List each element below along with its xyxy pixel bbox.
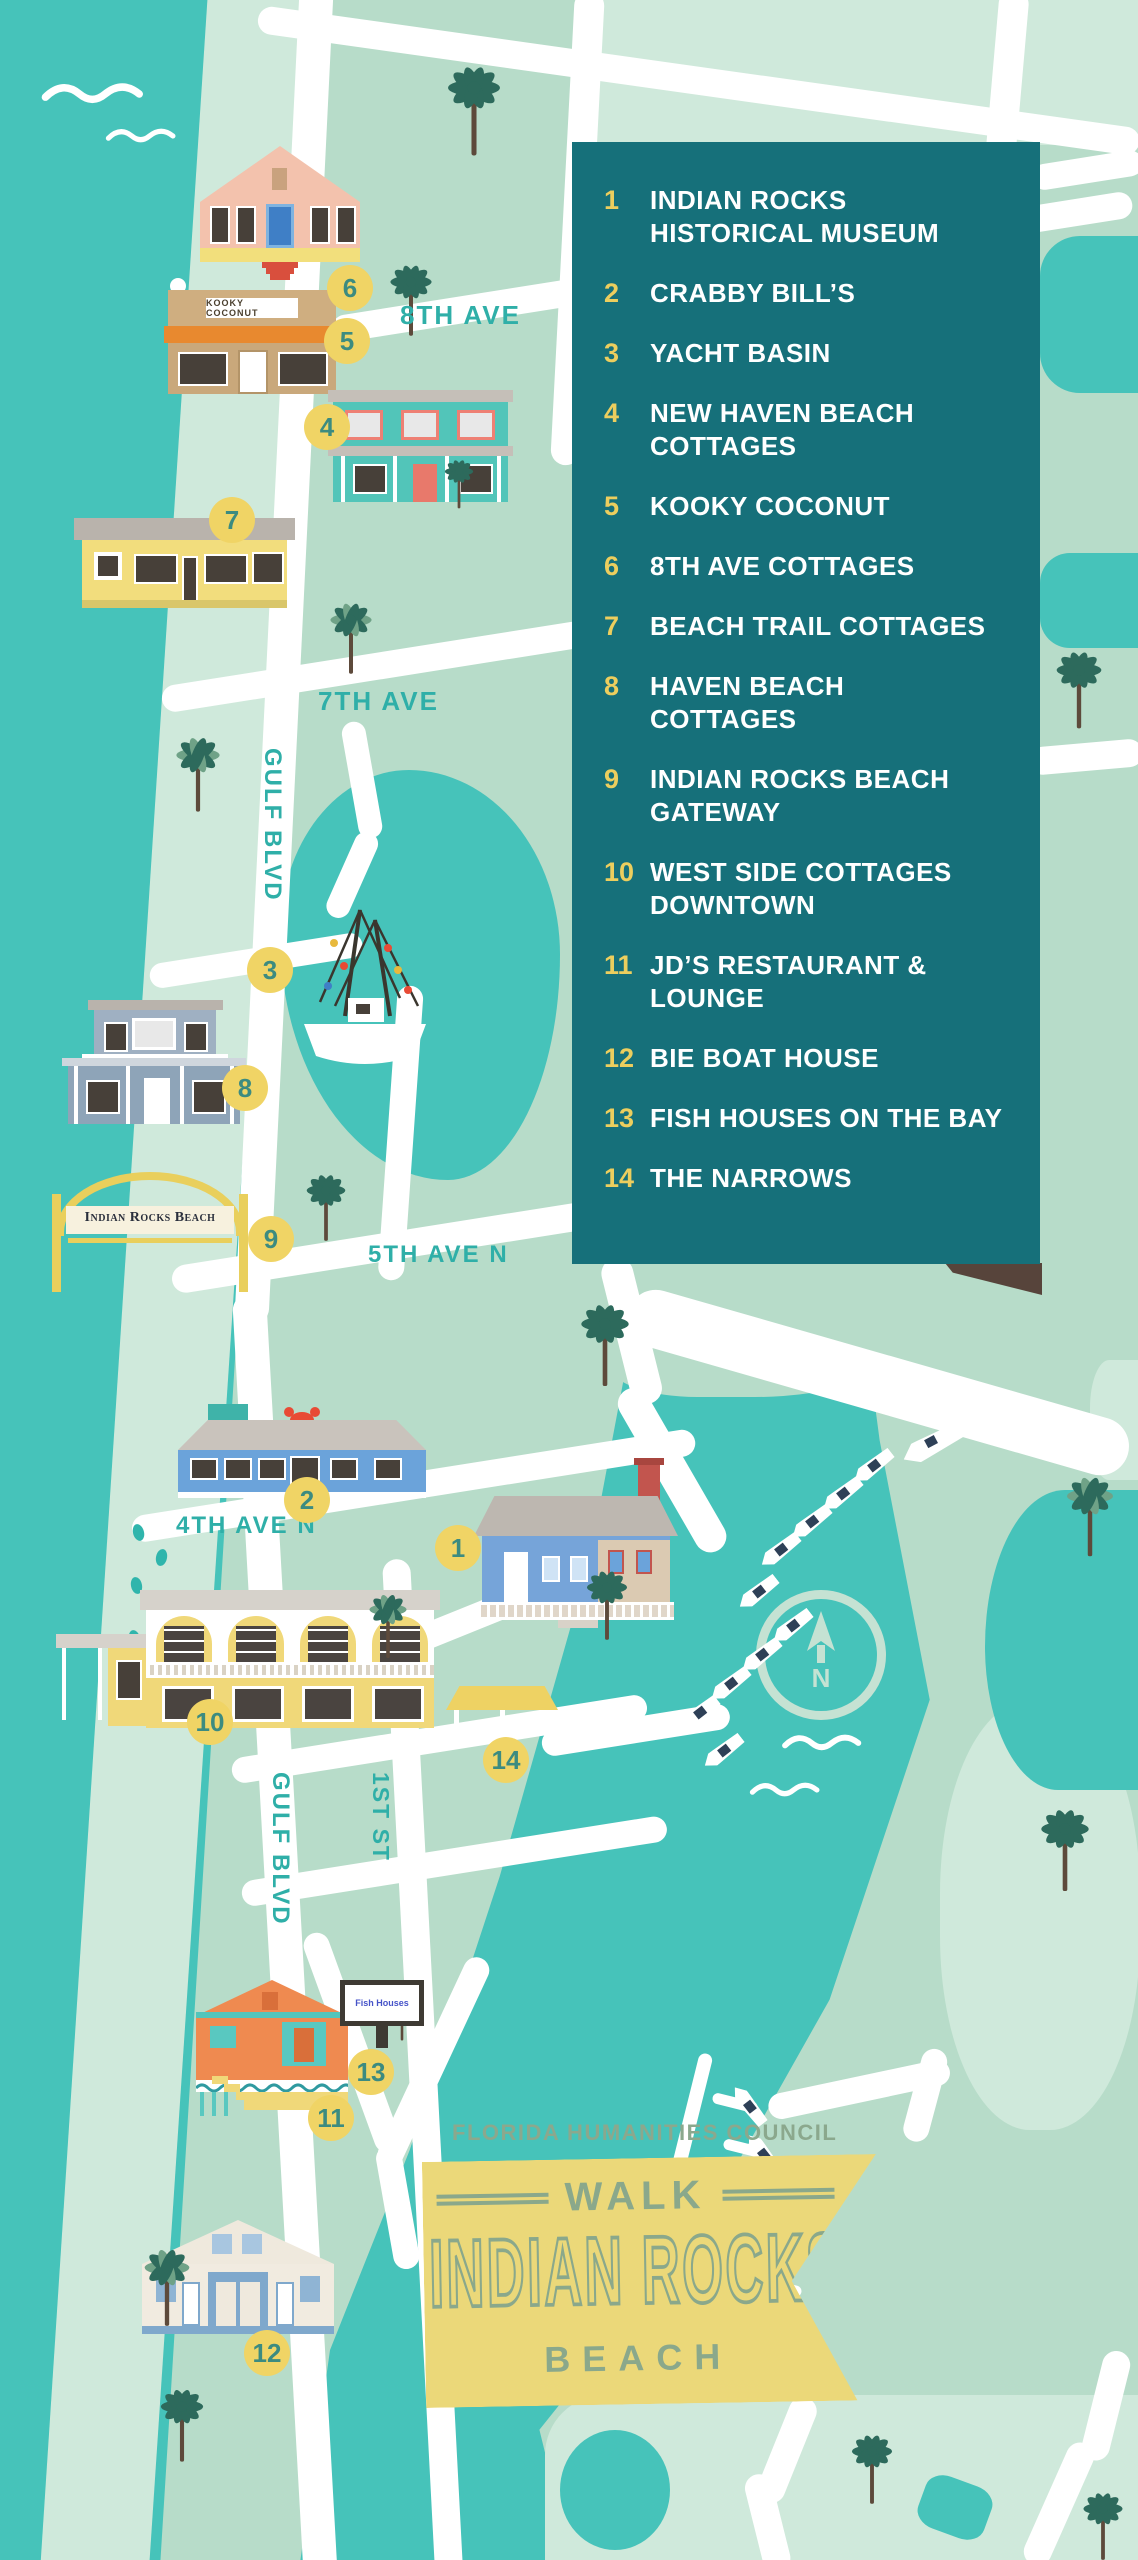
legend-number: 10 [604, 856, 650, 922]
compass-north-label: N [765, 1663, 877, 1694]
map-marker-3: 3 [247, 947, 293, 993]
palm-tree-icon [438, 52, 510, 164]
street-label-gulf-blvd-lower: GULF BLVD [266, 1772, 294, 1942]
legend-number: 7 [604, 610, 650, 643]
legend-item: 1INDIAN ROCKS HISTORICAL MUSEUM [604, 184, 1014, 250]
palm-tree-icon [150, 2382, 214, 2464]
gateway-sign-label: Indian Rocks Beach [66, 1210, 234, 1226]
entry-door [216, 2282, 236, 2326]
post [393, 456, 397, 502]
storefront [302, 1686, 354, 1722]
map-marker-9: 9 [248, 1216, 294, 1262]
palm-tree-icon [1032, 1800, 1098, 1895]
legend-item: 5KOOKY COCONUT [604, 490, 1014, 523]
post [545, 1710, 550, 1736]
legend-label: BIE BOAT HOUSE [650, 1042, 879, 1075]
legend-item: 11JD’S RESTAURANT & LOUNGE [604, 949, 1014, 1015]
sign-board: Fish Houses [340, 1980, 424, 2026]
post [52, 1194, 61, 1292]
attic-window [242, 2234, 262, 2254]
window [86, 1080, 120, 1114]
legend-label: JD’S RESTAURANT & LOUNGE [650, 949, 927, 1015]
hip-roof [178, 1420, 426, 1450]
roof-cap [88, 1000, 223, 1010]
building-8th-ave-cottages [200, 146, 360, 282]
legend-item: 9INDIAN ROCKS BEACH GATEWAY [604, 763, 1014, 829]
legend-number: 2 [604, 277, 650, 310]
building-beach-trail-cottages [82, 518, 287, 614]
street-label-8th-ave: 8TH AVE [400, 300, 521, 331]
post [341, 456, 345, 502]
base [200, 248, 360, 262]
map-marker-14: 14 [483, 1737, 529, 1783]
post [497, 456, 501, 502]
stilt [224, 2092, 228, 2116]
map-marker-11: 11 [308, 2095, 354, 2141]
window [300, 2276, 320, 2302]
porch-roof [62, 1058, 246, 1066]
banner-subtitle: BEACH [544, 2336, 733, 2381]
map-marker-10: 10 [187, 1699, 233, 1745]
legend-label: HAVEN BEACH COTTAGES [650, 670, 844, 736]
steps [270, 274, 290, 280]
legend-item: 12BIE BOAT HOUSE [604, 1042, 1014, 1075]
wave-icon [38, 78, 168, 110]
legend-item: 4NEW HAVEN BEACH COTTAGES [604, 397, 1014, 463]
building-kooky-coconut: KOOKY COCONUT [168, 290, 336, 394]
legend-item: 2CRABBY BILL’S [604, 277, 1014, 310]
illustrated-walking-map: N KOOKY COCONUT [0, 0, 1138, 2560]
roof [474, 1496, 678, 1536]
fish-houses-sign: Fish Houses [340, 1980, 430, 2050]
map-marker-6: 6 [327, 265, 373, 311]
legend-number: 9 [604, 763, 650, 829]
legend-label: THE NARROWS [650, 1162, 852, 1195]
window-pane [98, 556, 118, 576]
legend-item: 7BEACH TRAIL COTTAGES [604, 610, 1014, 643]
annex-window [116, 1660, 142, 1700]
palm-tree-icon [288, 1168, 364, 1243]
pavilion [446, 1686, 558, 1738]
window [374, 1458, 402, 1480]
arched-pane [308, 1626, 348, 1662]
window [542, 1556, 560, 1582]
window [345, 410, 383, 440]
map-marker-12: 12 [244, 2330, 290, 2376]
storefront-window [278, 352, 328, 386]
window [457, 410, 495, 440]
door [294, 2028, 314, 2062]
pond-bottom [560, 2430, 670, 2550]
window [132, 1018, 176, 1050]
map-marker-5: 5 [324, 318, 370, 364]
window [353, 464, 387, 494]
palm-tree-icon [1048, 640, 1110, 735]
arched-pane [164, 1626, 204, 1662]
stilt [200, 2092, 204, 2116]
legend-number: 1 [604, 184, 650, 250]
post [500, 1710, 505, 1736]
bay-inlet-upper [1040, 236, 1138, 393]
legend-number: 12 [604, 1042, 650, 1075]
post [239, 1194, 248, 1292]
map-marker-7: 7 [209, 497, 255, 543]
wave-icon [748, 1778, 836, 1802]
street-label-1st-st: 1ST ST [367, 1772, 394, 1882]
attic-window [212, 2234, 232, 2254]
storefront [372, 1686, 424, 1722]
palm-tree-icon [168, 708, 228, 836]
council-title: FLORIDA HUMANITIES COUNCIL [452, 2120, 837, 2146]
legend-label: INDIAN ROCKS BEACH GATEWAY [650, 763, 949, 829]
banner-title: INDIAN ROCKS [429, 2211, 845, 2329]
palm-tree-icon [568, 1564, 646, 1642]
palm-tree-icon [136, 2234, 198, 2336]
post [74, 1066, 78, 1124]
palm-tree-icon [842, 2428, 902, 2506]
storefront-window [178, 352, 228, 386]
legend-panel: 1INDIAN ROCKS HISTORICAL MUSEUM 2CRABBY … [572, 142, 1040, 1264]
window [236, 206, 256, 244]
window [401, 410, 439, 440]
gateway-arch-sign: Indian Rocks Beach [52, 1172, 248, 1292]
door [266, 204, 294, 248]
map-marker-1: 1 [435, 1525, 481, 1571]
door [276, 2282, 294, 2326]
stilt [212, 2092, 216, 2116]
window [330, 1458, 358, 1480]
wave-icon [780, 1730, 880, 1756]
legend-number: 13 [604, 1102, 650, 1135]
rooftop-sign [208, 1404, 248, 1420]
awning [164, 326, 340, 343]
post [180, 1066, 184, 1124]
street-label-gulf-blvd-upper: GULF BLVD [258, 748, 286, 918]
legend-label: YACHT BASIN [650, 337, 831, 370]
legend-number: 3 [604, 337, 650, 370]
base [82, 600, 287, 608]
legend-label: FISH HOUSES ON THE BAY [650, 1102, 1002, 1135]
window [252, 552, 284, 584]
attic-window [262, 1992, 278, 2010]
legend-number: 5 [604, 490, 650, 523]
annex-roof [56, 1634, 160, 1648]
legend-number: 4 [604, 397, 650, 463]
canopy [446, 1686, 558, 1710]
palm-tree-icon [312, 596, 390, 676]
palm-tree-icon [356, 1588, 420, 1660]
window [190, 1458, 218, 1480]
legend-item: 3YACHT BASIN [604, 337, 1014, 370]
walk-bar-left [437, 2193, 549, 2206]
map-marker-13: 13 [348, 2049, 394, 2095]
annex-post [98, 1648, 102, 1720]
map-marker-8: 8 [222, 1065, 268, 1111]
stairs [224, 2084, 240, 2092]
wave-icon [104, 124, 192, 148]
legend-number: 14 [604, 1162, 650, 1195]
window [134, 554, 178, 584]
map-marker-4: 4 [304, 404, 350, 450]
legend-item: 8HAVEN BEACH COTTAGES [604, 670, 1014, 736]
compass-needle-icon [765, 1599, 877, 1711]
legend-label: INDIAN ROCKS HISTORICAL MUSEUM [650, 184, 939, 250]
window [224, 1458, 252, 1480]
legend-item: 14THE NARROWS [604, 1162, 1014, 1195]
window [204, 554, 248, 584]
legend-item: 10WEST SIDE COTTAGES DOWNTOWN [604, 856, 1014, 922]
balustrade [146, 1662, 434, 1678]
map-marker-2: 2 [284, 1477, 330, 1523]
street-label-5th-ave-n: 5TH AVE N [368, 1241, 509, 1269]
post [454, 1710, 459, 1736]
palm-tree-icon [572, 1290, 638, 1395]
door [238, 350, 268, 394]
window [310, 206, 330, 244]
window [258, 1458, 286, 1480]
window [104, 1022, 128, 1052]
legend-number: 6 [604, 550, 650, 583]
chimney-cap [634, 1458, 664, 1465]
post [126, 1066, 130, 1124]
window [184, 1022, 208, 1052]
window [192, 1080, 226, 1114]
roof [74, 518, 295, 540]
attic-window [272, 168, 287, 190]
legend-label: BEACH TRAIL COTTAGES [650, 610, 985, 643]
legend-number: 11 [604, 949, 650, 1015]
walk-bar-right [722, 2188, 834, 2201]
door [182, 556, 198, 604]
legend-item: 68TH AVE COTTAGES [604, 550, 1014, 583]
compass-icon: N [756, 1590, 886, 1720]
legend-label: 8TH AVE COTTAGES [650, 550, 915, 583]
building-haven-beach-cottages [68, 1000, 240, 1124]
door [144, 1078, 170, 1124]
kooky-sign: KOOKY COCONUT [206, 298, 298, 318]
shrimp-boat-icon [290, 898, 440, 1083]
legend-label: CRABBY BILL’S [650, 277, 855, 310]
arch-bar [68, 1238, 232, 1243]
entry-door [240, 2282, 260, 2326]
legend-label: WEST SIDE COTTAGES DOWNTOWN [650, 856, 952, 922]
storefront [232, 1686, 284, 1722]
stairs [212, 2076, 228, 2084]
legend-item: 13FISH HOUSES ON THE BAY [604, 1102, 1014, 1135]
street-label-7th-ave: 7TH AVE [318, 686, 439, 717]
arched-pane [236, 1626, 276, 1662]
palm-tree-icon [1058, 1444, 1122, 1584]
parapet [328, 390, 513, 402]
legend-number: 8 [604, 670, 650, 736]
legend-label: KOOKY COCONUT [650, 490, 890, 523]
door [504, 1552, 528, 1602]
window [210, 2026, 236, 2048]
canal-band [1040, 553, 1138, 648]
palm-tree-icon [428, 455, 490, 510]
palm-tree-icon [1072, 2486, 1134, 2560]
legend-label: NEW HAVEN BEACH COTTAGES [650, 397, 914, 463]
annex-post [62, 1648, 66, 1720]
sign-post [376, 2026, 388, 2048]
boat-icon [707, 1664, 752, 1704]
window [210, 206, 230, 244]
boat-icon [700, 1731, 745, 1771]
window [336, 206, 356, 244]
